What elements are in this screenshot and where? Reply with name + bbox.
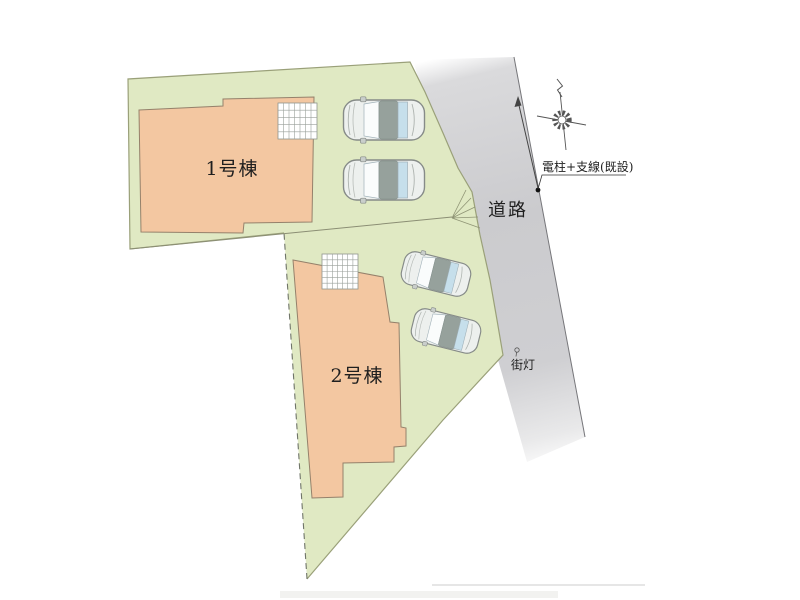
street-light-label: 街灯: [511, 358, 535, 372]
building-2-grid: [322, 254, 358, 289]
building-1-label: 1号棟: [205, 158, 258, 180]
site-plan-image: 1号棟 2号棟 電柱+支線(既設) 道路 街灯: [0, 0, 800, 600]
building-1-grid: [278, 103, 317, 139]
bottom-shade: [280, 591, 558, 598]
car-topview-1: [344, 97, 425, 143]
car-topview-2: [344, 157, 425, 203]
site-plan-canvas: 1号棟 2号棟 電柱+支線(既設) 道路 街灯: [0, 0, 800, 600]
road-label: 道路: [488, 200, 528, 221]
building-2-label: 2号棟: [330, 365, 383, 387]
utility-pole-label: 電柱+支線(既設): [542, 159, 633, 174]
